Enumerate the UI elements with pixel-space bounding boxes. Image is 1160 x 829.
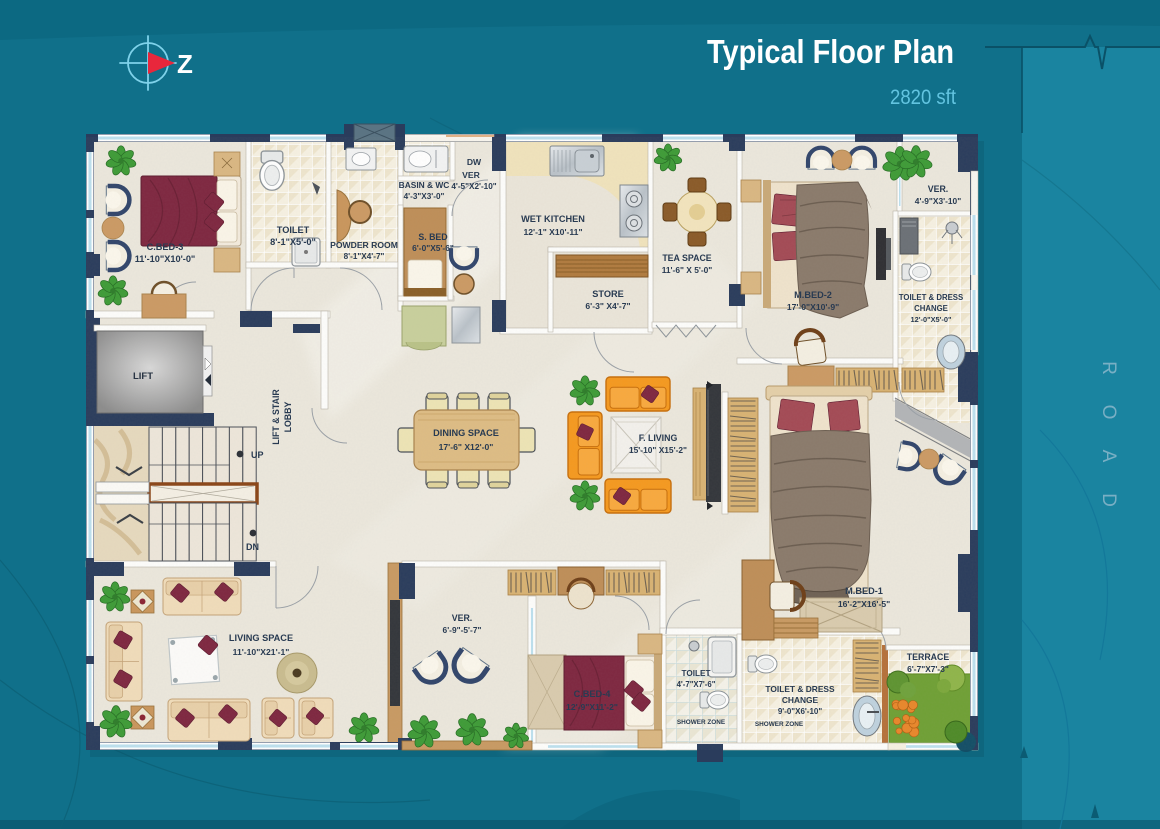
svg-text:Z: Z [177, 49, 193, 79]
svg-text:R: R [1098, 361, 1119, 375]
svg-text:O: O [1098, 405, 1119, 420]
svg-text:2820 sft: 2820 sft [890, 86, 956, 109]
svg-text:Typical Floor Plan: Typical Floor Plan [707, 33, 954, 70]
svg-text:D: D [1098, 493, 1119, 507]
svg-text:A: A [1098, 450, 1119, 463]
